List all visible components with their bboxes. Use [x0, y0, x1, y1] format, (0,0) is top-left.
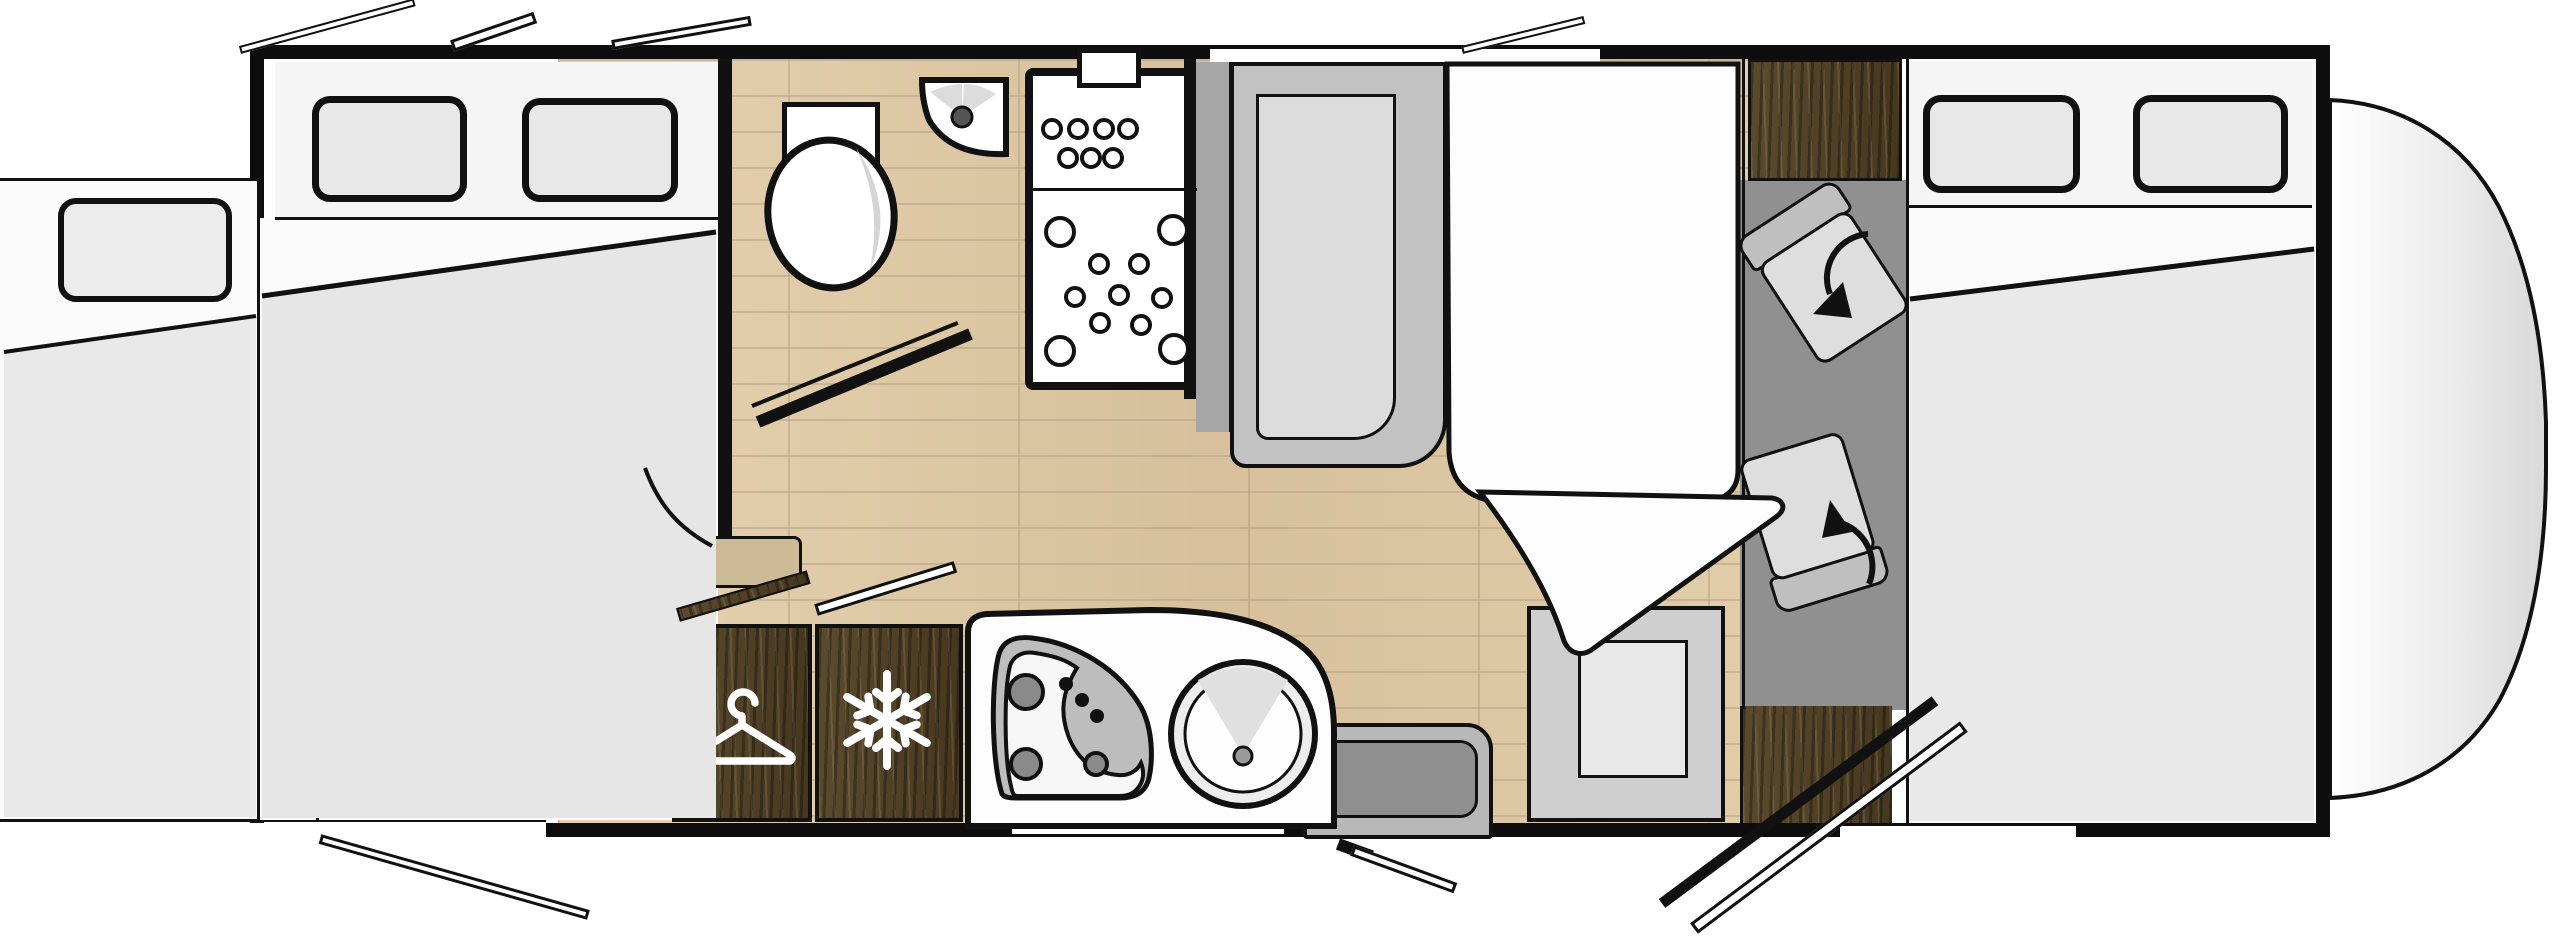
shower-vent-notch	[1077, 48, 1141, 88]
bedroom-bathroom-wall	[718, 59, 732, 559]
cab-overhead-cabinet	[1748, 59, 1902, 181]
shower-tray	[1025, 68, 1205, 390]
open-window-bar-bottom	[319, 834, 590, 920]
top-wall-window-strip	[1210, 49, 1600, 62]
mattress-split-line	[316, 308, 319, 820]
bench-side-trim	[1196, 62, 1232, 432]
front-window-2	[2133, 95, 2288, 193]
hanger-icon	[676, 628, 808, 818]
wall-gap-patch	[250, 823, 546, 839]
side-bench-cushion	[1318, 740, 1478, 818]
bathroom-lounge-wall	[1184, 59, 1196, 399]
wardrobe	[672, 624, 812, 822]
refrigerator	[815, 624, 963, 822]
front-bed-edge-line	[1906, 59, 1909, 823]
forward-bench-cushion	[1256, 94, 1396, 440]
dinette-table-panel	[1578, 640, 1688, 778]
cab-boundary-line	[1742, 59, 1745, 709]
floorplan-canvas	[0, 0, 2560, 939]
slideout-edge-line	[257, 180, 260, 820]
snowflake-icon	[819, 628, 959, 818]
front-window-1	[1923, 95, 2080, 193]
toilet-cistern	[782, 102, 880, 168]
entrance-door-opening	[1840, 826, 2076, 839]
bedroom-window-2	[522, 98, 678, 202]
shower-tray-divider	[1033, 188, 1197, 191]
bedroom-window-1	[312, 96, 467, 202]
bed-pillow	[58, 198, 232, 302]
entrance-door-swing-bar	[1350, 845, 1457, 893]
rear-bed-base	[260, 218, 718, 820]
garage-hatch-strip	[1012, 826, 1284, 834]
